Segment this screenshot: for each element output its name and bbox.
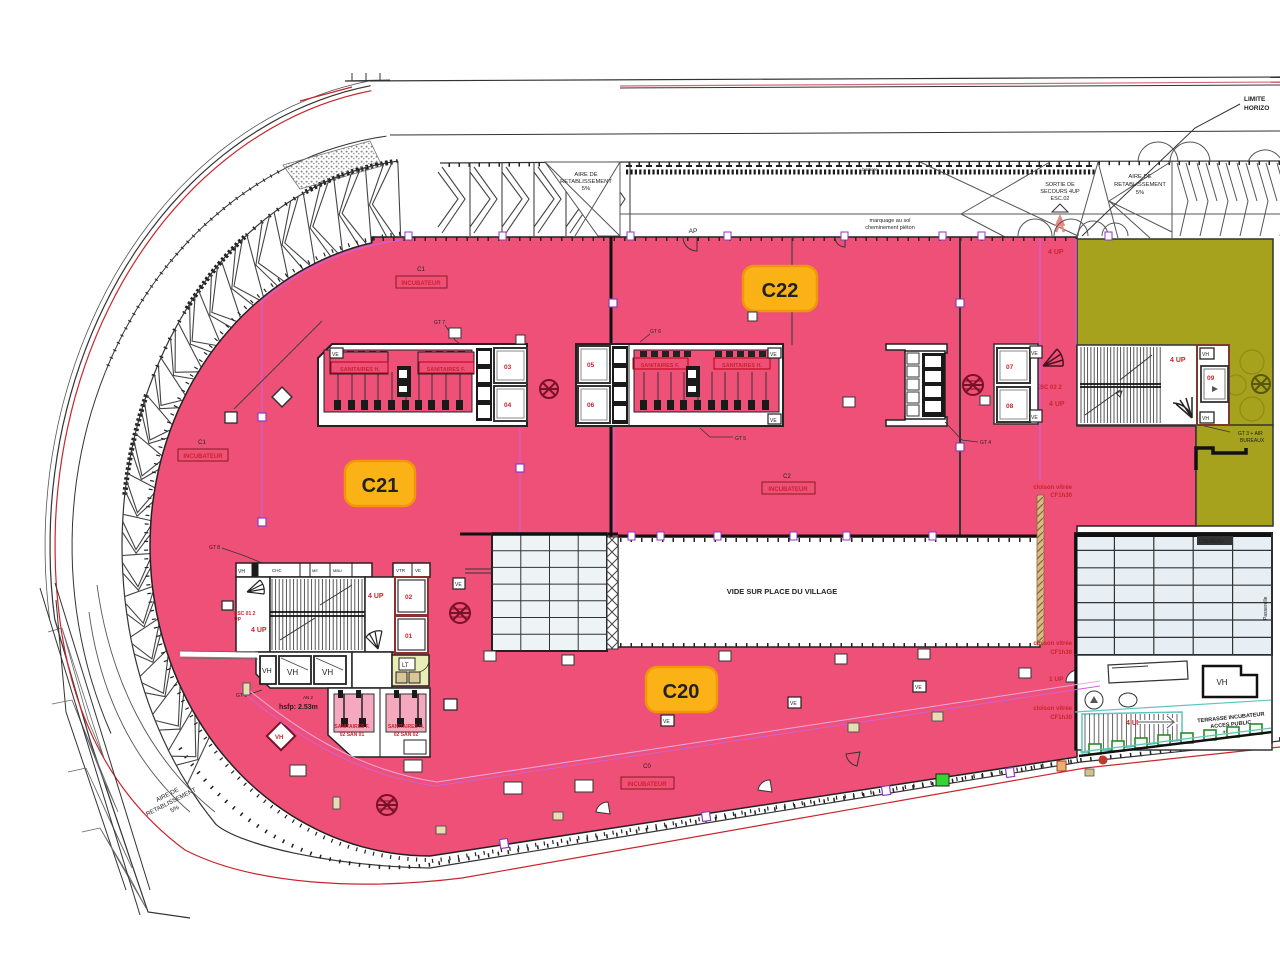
svg-text:VH: VH xyxy=(275,735,283,741)
svg-text:GT 6: GT 6 xyxy=(650,329,661,335)
svg-text:AN 2: AN 2 xyxy=(303,695,314,700)
svg-text:BUREAUX: BUREAUX xyxy=(1240,438,1265,444)
svg-text:LT: LT xyxy=(402,663,409,669)
svg-text:INCUBATEUR: INCUBATEUR xyxy=(401,281,441,287)
svg-text:GT 8: GT 8 xyxy=(209,545,220,551)
svg-text:08: 08 xyxy=(1006,403,1014,410)
svg-text:CHC: CHC xyxy=(272,568,282,573)
svg-text:5%: 5% xyxy=(1136,190,1144,196)
svg-text:GT 3 + AIR: GT 3 + AIR xyxy=(1238,431,1263,437)
svg-text:RETABLISSEMENT: RETABLISSEMENT xyxy=(1114,182,1166,188)
svg-text:VH: VH xyxy=(238,569,245,575)
svg-text:Passerelle: Passerelle xyxy=(1263,596,1269,620)
svg-text:5%: 5% xyxy=(582,186,590,192)
svg-text:VE: VE xyxy=(415,568,421,573)
svg-text:ESC.02: ESC.02 xyxy=(1051,196,1070,202)
svg-text:VE: VE xyxy=(770,352,777,358)
svg-text:VE: VE xyxy=(1031,351,1038,357)
svg-text:INCUBATEUR: INCUBATEUR xyxy=(768,487,808,493)
svg-text:VH: VH xyxy=(1216,678,1227,687)
svg-text:GT 5: GT 5 xyxy=(735,436,746,442)
svg-text:SANITAIRES F.: SANITAIRES F. xyxy=(641,363,680,369)
svg-text:VE: VE xyxy=(1031,415,1038,421)
svg-text:VE: VE xyxy=(770,418,777,424)
svg-text:CF1h30: CF1h30 xyxy=(1050,493,1072,499)
svg-text:02 SAN 01: 02 SAN 01 xyxy=(340,732,365,738)
svg-text:VH: VH xyxy=(287,668,298,677)
svg-text:marquage au sol: marquage au sol xyxy=(870,218,911,224)
svg-text:C20: C20 xyxy=(663,681,700,703)
svg-text:VTR: VTR xyxy=(396,568,406,573)
svg-text:01: 01 xyxy=(405,633,413,640)
svg-text:VE: VE xyxy=(915,685,922,691)
svg-text:SANITAIRES F.: SANITAIRES F. xyxy=(427,367,466,373)
svg-text:HORIZO: HORIZO xyxy=(1244,105,1269,112)
svg-text:02: 02 xyxy=(405,594,413,601)
svg-text:INCUBATEUR: INCUBATEUR xyxy=(183,454,223,460)
svg-text:VH: VH xyxy=(1202,416,1209,422)
svg-text:VE: VE xyxy=(790,701,797,707)
svg-text:VE: VE xyxy=(663,719,670,725)
svg-text:C0: C0 xyxy=(643,764,651,770)
svg-text:02 SAN 02: 02 SAN 02 xyxy=(394,732,419,738)
svg-text:barriere: barriere xyxy=(862,167,878,172)
svg-text:4 UP: 4 UP xyxy=(1049,401,1065,408)
svg-text:06: 06 xyxy=(587,402,595,409)
svg-text:AP: AP xyxy=(689,228,698,235)
svg-text:MBU: MBU xyxy=(333,568,342,573)
svg-text:SANITAIRES F.: SANITAIRES F. xyxy=(334,724,370,730)
svg-text:4 UP: 4 UP xyxy=(368,593,384,600)
svg-text:VE: VE xyxy=(332,352,339,358)
svg-text:cheminement piéton: cheminement piéton xyxy=(865,225,915,231)
svg-text:SANITAIRES H.: SANITAIRES H. xyxy=(340,367,380,373)
svg-text:C2: C2 xyxy=(783,474,791,480)
svg-text:4 UP: 4 UP xyxy=(1170,357,1186,364)
svg-text:AIRE DE: AIRE DE xyxy=(574,172,597,178)
svg-text:RETABLISSEMENT: RETABLISSEMENT xyxy=(560,179,612,185)
svg-text:04: 04 xyxy=(504,402,512,409)
svg-text:hsfp: 2.53m: hsfp: 2.53m xyxy=(279,704,318,711)
svg-text:07: 07 xyxy=(1006,364,1014,371)
svg-text:CF1h30: CF1h30 xyxy=(1050,650,1072,656)
svg-text:03: 03 xyxy=(504,364,512,371)
svg-text:cloison vitrée: cloison vitrée xyxy=(1033,706,1072,712)
svg-text:SANITAIRES H.: SANITAIRES H. xyxy=(388,724,425,730)
svg-text:LIMITE: LIMITE xyxy=(1244,96,1266,103)
svg-text:C1: C1 xyxy=(198,440,206,446)
svg-text:4 UP: 4 UP xyxy=(1048,249,1064,256)
svg-text:CHENEAU: CHENEAU xyxy=(1199,539,1224,545)
svg-text:VH: VH xyxy=(322,668,333,677)
svg-text:ME: ME xyxy=(312,568,318,573)
svg-text:4 UP: 4 UP xyxy=(251,627,267,634)
svg-text:1 UP: 1 UP xyxy=(1049,676,1064,683)
svg-text:GT 4: GT 4 xyxy=(980,440,991,446)
svg-text:SECOURS 4UP: SECOURS 4UP xyxy=(1040,189,1080,195)
svg-text:SANITAIRES H.: SANITAIRES H. xyxy=(722,363,762,369)
svg-text:SORTIE DE: SORTIE DE xyxy=(1045,182,1075,188)
svg-text:CF1h30: CF1h30 xyxy=(1050,715,1072,721)
svg-text:VE: VE xyxy=(455,582,462,588)
svg-text:GT 7: GT 7 xyxy=(434,320,445,326)
svg-text:05: 05 xyxy=(587,362,595,369)
svg-text:cloison vitrée: cloison vitrée xyxy=(1033,641,1072,647)
svg-text:C21: C21 xyxy=(362,475,399,497)
svg-text:ESC 02 2: ESC 02 2 xyxy=(1036,385,1062,391)
svg-text:INCUBATEUR: INCUBATEUR xyxy=(627,782,667,788)
svg-text:C1: C1 xyxy=(417,267,425,273)
svg-text:UP: UP xyxy=(234,617,242,623)
svg-text:C22: C22 xyxy=(762,280,799,302)
svg-text:VH: VH xyxy=(1202,352,1209,358)
svg-text:cloison vitrée: cloison vitrée xyxy=(1033,485,1072,491)
svg-text:09: 09 xyxy=(1207,375,1215,382)
svg-text:VIDE SUR PLACE DU VILLAGE: VIDE SUR PLACE DU VILLAGE xyxy=(727,587,837,596)
svg-text:VH: VH xyxy=(262,668,272,675)
svg-text:AIRE DE: AIRE DE xyxy=(1128,174,1151,180)
